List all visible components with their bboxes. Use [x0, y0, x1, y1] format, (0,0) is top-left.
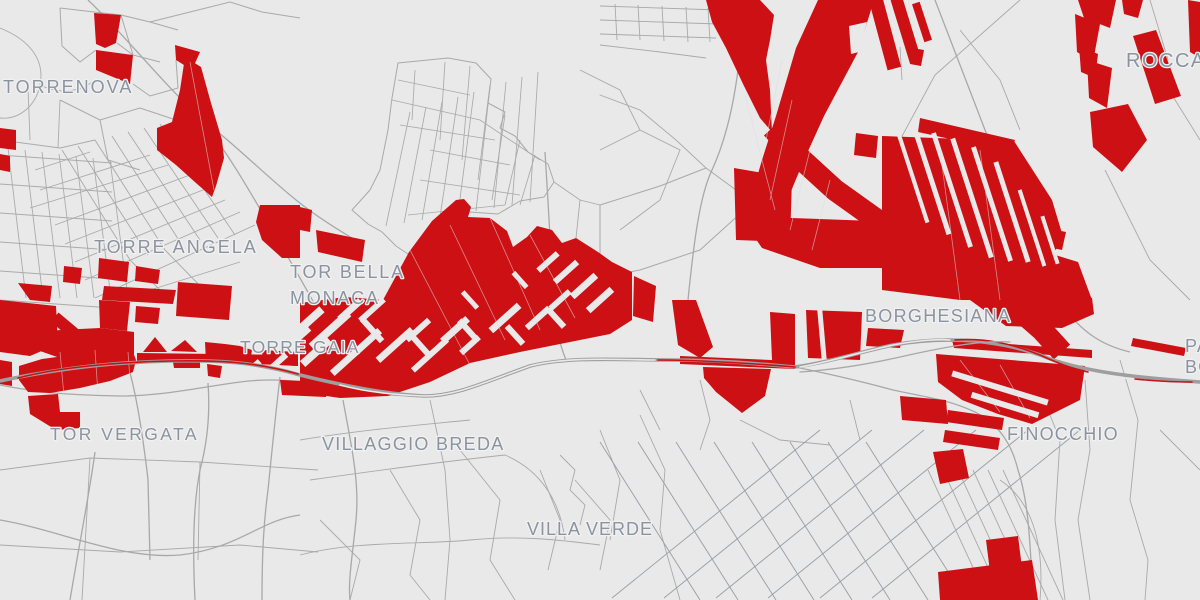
- svg-text:PAN: PAN: [1185, 336, 1200, 356]
- svg-text:ROCCA: ROCCA: [1126, 50, 1200, 72]
- svg-text:TORRE GAIA: TORRE GAIA: [240, 337, 360, 357]
- svg-text:TORRENOVA: TORRENOVA: [3, 77, 133, 97]
- svg-text:TORRE ANGELA: TORRE ANGELA: [94, 237, 258, 257]
- svg-text:FINOCCHIO: FINOCCHIO: [1007, 424, 1119, 444]
- svg-text:VILLAGGIO BREDA: VILLAGGIO BREDA: [322, 434, 505, 454]
- svg-text:MONACA: MONACA: [290, 288, 380, 308]
- svg-text:BORGHESIANA: BORGHESIANA: [865, 306, 1011, 326]
- svg-text:TOR VERGATA: TOR VERGATA: [50, 424, 199, 444]
- svg-text:TOR BELLA: TOR BELLA: [290, 262, 405, 282]
- svg-text:VILLA VERDE: VILLA VERDE: [527, 519, 653, 539]
- svg-text:BOR: BOR: [1185, 357, 1200, 377]
